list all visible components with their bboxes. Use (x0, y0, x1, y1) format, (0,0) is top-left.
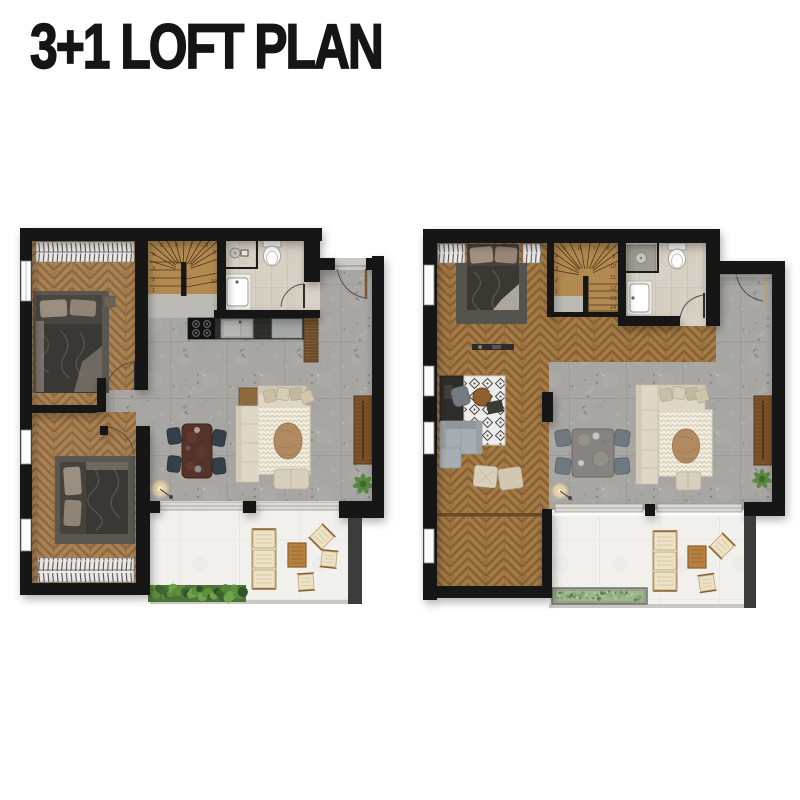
svg-text:5: 5 (563, 246, 566, 252)
svg-text:8: 8 (607, 246, 610, 252)
svg-text:10: 10 (211, 279, 217, 285)
svg-text:14: 14 (610, 305, 616, 311)
svg-text:11: 11 (610, 275, 616, 281)
svg-text:10: 10 (610, 264, 616, 270)
svg-text:1: 1 (555, 289, 558, 295)
svg-text:7: 7 (190, 243, 193, 249)
svg-text:3: 3 (152, 266, 155, 272)
svg-text:13: 13 (610, 296, 616, 302)
svg-text:6: 6 (175, 243, 178, 249)
svg-text:4: 4 (152, 252, 155, 258)
svg-text:2: 2 (555, 278, 558, 284)
svg-text:7: 7 (593, 246, 596, 252)
svg-text:5: 5 (160, 243, 163, 249)
svg-text:12: 12 (610, 286, 616, 292)
svg-text:2: 2 (152, 277, 155, 283)
svg-text:3: 3 (555, 266, 558, 272)
svg-text:9: 9 (213, 250, 216, 256)
svg-text:1: 1 (152, 288, 155, 294)
svg-text:4: 4 (555, 254, 558, 260)
svg-text:6: 6 (578, 246, 581, 252)
svg-text:8: 8 (205, 243, 208, 249)
svg-text:9: 9 (612, 254, 615, 260)
